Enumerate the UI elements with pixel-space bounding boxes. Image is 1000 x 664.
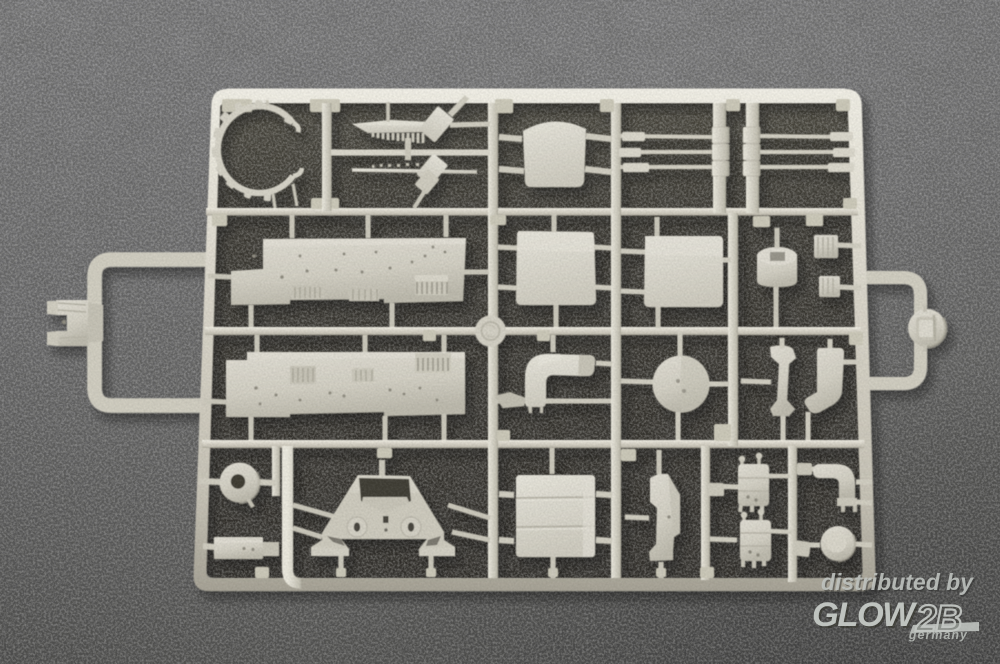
- svg-text:GLOW: GLOW: [812, 596, 918, 634]
- svg-text:distributed by: distributed by: [821, 569, 974, 595]
- svg-text:germany: germany: [908, 628, 968, 642]
